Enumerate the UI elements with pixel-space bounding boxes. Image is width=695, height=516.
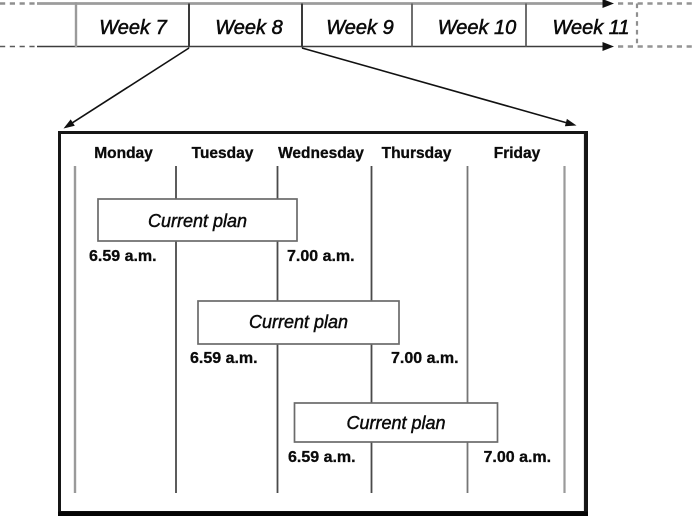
svg-text:Week 8: Week 8 — [215, 17, 282, 39]
svg-text:6.59 a.m.: 6.59 a.m. — [89, 248, 157, 265]
svg-text:Monday: Monday — [94, 145, 153, 162]
svg-text:Friday: Friday — [494, 145, 541, 162]
svg-text:Week 10: Week 10 — [438, 17, 517, 39]
svg-text:7.00 a.m.: 7.00 a.m. — [484, 449, 552, 466]
svg-text:Current plan: Current plan — [346, 413, 445, 433]
svg-text:Tuesday: Tuesday — [192, 145, 254, 162]
svg-text:6.59 a.m.: 6.59 a.m. — [288, 449, 356, 466]
svg-text:6.59 a.m.: 6.59 a.m. — [190, 350, 258, 367]
svg-text:7.00 a.m.: 7.00 a.m. — [287, 248, 355, 265]
svg-text:Week 9: Week 9 — [326, 17, 393, 39]
svg-text:Wednesday: Wednesday — [278, 145, 364, 162]
svg-text:Current plan: Current plan — [249, 312, 348, 332]
svg-text:7.00 a.m.: 7.00 a.m. — [391, 350, 459, 367]
svg-text:Week 7: Week 7 — [99, 17, 167, 39]
svg-text:Thursday: Thursday — [382, 145, 452, 162]
svg-text:Week 11: Week 11 — [552, 17, 629, 39]
svg-text:Current plan: Current plan — [148, 211, 247, 231]
